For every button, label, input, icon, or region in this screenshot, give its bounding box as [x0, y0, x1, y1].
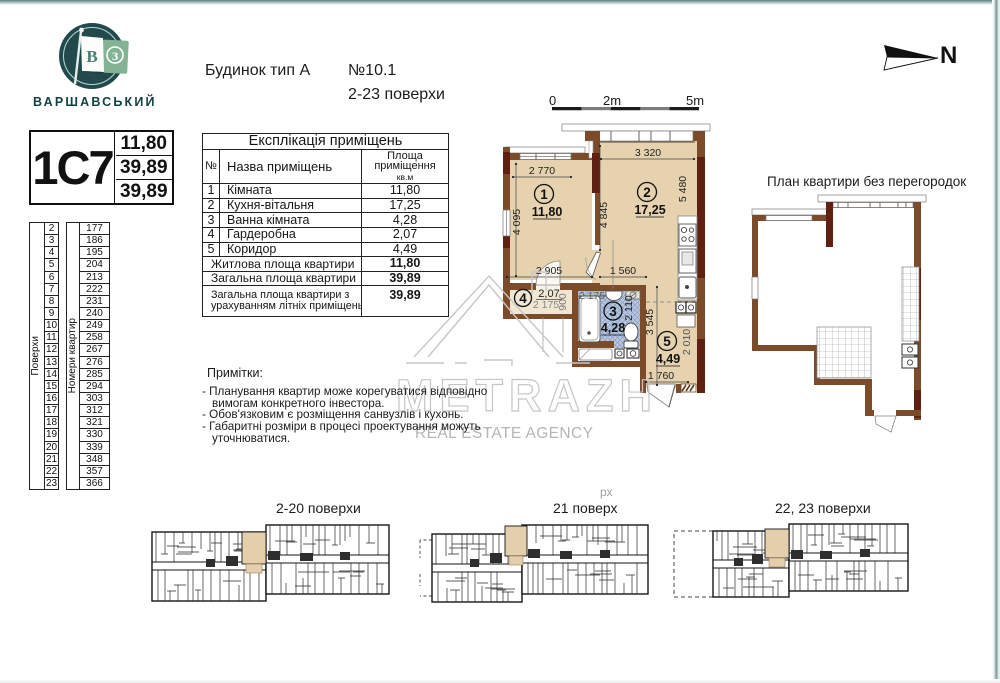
svg-text:px: px [600, 485, 613, 499]
